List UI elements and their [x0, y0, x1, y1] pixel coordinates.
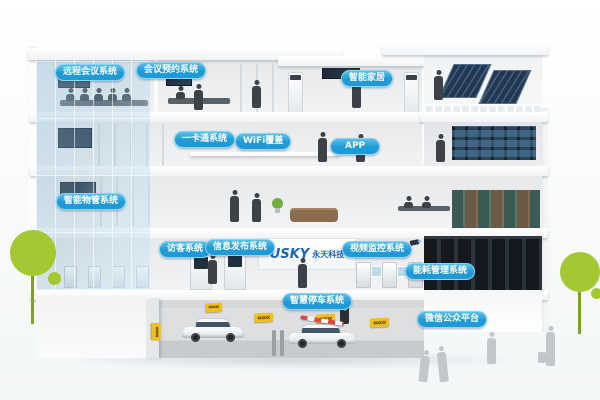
label-wechat-public-platform: 微信公众平台: [417, 311, 487, 328]
kiosk-screen: [194, 257, 208, 269]
person-silhouette: [230, 190, 239, 222]
label-app: APP: [330, 138, 380, 155]
person-silhouette: [252, 193, 261, 222]
tree: [10, 230, 56, 276]
tree-trunk: [578, 290, 581, 334]
tree: [591, 288, 600, 299]
luggage: [538, 352, 546, 363]
label-meeting-reservation-system: 会议预约系统: [136, 62, 206, 79]
video-monitor-wall: [452, 126, 536, 160]
air-conditioner-unit: [288, 72, 303, 114]
sofa: [290, 208, 338, 222]
person-silhouette: [434, 70, 443, 100]
speed-gate: [382, 262, 397, 288]
air-conditioner-unit: [404, 72, 419, 114]
label-smart-parking-system: 智慧停车系统: [282, 293, 352, 310]
foundation-wall: [36, 296, 146, 358]
person-silhouette: [436, 134, 445, 162]
person-silhouette: [208, 254, 217, 284]
storage-cabinets: [452, 188, 540, 228]
chevron-arrows-icon: «««: [254, 313, 273, 323]
label-one-card-system: 一卡通系统: [174, 131, 235, 148]
label-wifi-coverage: WiFi覆盖: [235, 133, 291, 150]
person-silhouette: [194, 84, 203, 110]
tree: [560, 252, 600, 292]
roof-slab: [278, 56, 426, 66]
person-silhouette: [546, 326, 555, 366]
speed-gate: [356, 262, 371, 288]
label-video-surveillance-system: 视频监控系统: [342, 241, 412, 258]
chevron-arrows-icon: «««: [152, 323, 161, 340]
roof-slab: [382, 44, 548, 55]
parking-post: [280, 330, 284, 356]
floor-slab: [420, 112, 548, 122]
label-smart-home: 智能家居: [341, 70, 393, 87]
car-wheel: [298, 339, 307, 348]
label-energy-management-system: 能耗管理系统: [405, 263, 475, 280]
tree: [48, 272, 61, 285]
chevron-arrows-icon: «««: [205, 303, 222, 313]
label-property-management-system: 智能物管系统: [56, 193, 126, 210]
car-wheel: [226, 333, 235, 342]
car-wheel: [191, 333, 200, 342]
person-silhouette: [318, 132, 327, 162]
car-wheel: [337, 339, 346, 348]
potted-plant: [272, 198, 283, 209]
usky-company-name: 永天科技: [312, 249, 344, 260]
tree-trunk: [31, 272, 34, 324]
label-visitor-system: 访客系统: [159, 241, 211, 258]
parked-car: [288, 324, 356, 348]
person-silhouette: [176, 86, 185, 99]
parked-car: [182, 318, 244, 342]
label-remote-conference-system: 远程会议系统: [55, 64, 125, 81]
person-silhouette: [422, 196, 431, 208]
chevron-arrows-icon: «««: [370, 318, 389, 328]
info-kiosk: [224, 250, 246, 290]
parking-post: [272, 330, 276, 356]
kiosk-screen: [228, 255, 242, 267]
person-silhouette: [487, 332, 496, 364]
label-information-publishing-system: 信息发布系统: [205, 239, 275, 256]
person-silhouette: [404, 196, 413, 208]
person-silhouette: [252, 80, 261, 108]
gate-flap: [371, 266, 382, 277]
person-silhouette: [298, 258, 307, 288]
smart-building-illustration: USKY 永天科技 ««« ««« ««« ««« «««: [0, 0, 600, 400]
